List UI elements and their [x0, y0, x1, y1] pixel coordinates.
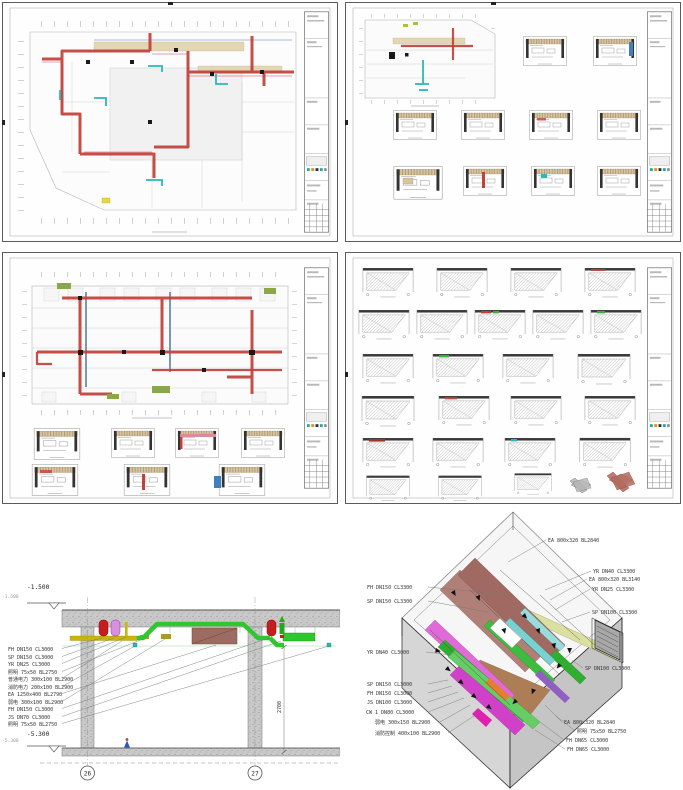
blue-riser — [214, 476, 221, 488]
elev-top-value-small: -1.500 — [2, 594, 19, 600]
section-label-4: 普通电力 300x100 BL2900 — [8, 676, 73, 683]
axon-left-4: FH DN150 CL3000 — [367, 691, 412, 697]
leader-lines — [62, 637, 329, 724]
section-label-9: JS DN70 CL3000 — [8, 715, 50, 721]
grid-bubble-26: 26 — [81, 766, 95, 780]
elevation-marker-bottom: -5.300 -5.300 — [2, 731, 66, 752]
elev-bottom-value: -5.300 — [27, 731, 50, 738]
axon-right-4: SP DN100 CL3300 — [592, 610, 637, 616]
axon-right-5: SP DN100 CL3000 — [585, 666, 630, 672]
axon-left-8: 消防控制 400x100 BL2900 — [375, 730, 440, 737]
section-label-10: 照明 75x50 BL2750 — [8, 722, 57, 728]
yellow-stub — [125, 622, 128, 636]
fire-tank-red-2 — [267, 620, 276, 636]
axon-left-0: FH DN150 CL3300 — [367, 585, 412, 591]
fire-tank-red — [99, 620, 108, 636]
section-label-3: 照明 75x50 BL2750 — [8, 670, 57, 676]
plan-drawing — [22, 272, 297, 418]
grid-bubble-27: 27 — [248, 766, 262, 780]
tank-magenta — [111, 620, 120, 636]
elev-top-value: -1.500 — [27, 584, 50, 591]
title-block — [647, 12, 672, 232]
section-label-5: 消防电力 200x100 BL2900 — [8, 684, 73, 691]
axon-3d-view: FH DN150 CL3300 SP DN150 CL3300 YR DN40 … — [340, 500, 683, 790]
axon-right-9: FH DN65 CL3000 — [567, 747, 609, 753]
title-block — [304, 268, 329, 488]
axon-left-3: SP DN150 CL3000 — [367, 682, 412, 688]
section-label-6: EA 1250x400 BL2790 — [8, 692, 62, 698]
axon-right-3: YR DN25 CL3300 — [592, 587, 634, 593]
sheet-plan-basement — [2, 2, 338, 242]
sheet-details-b — [345, 252, 681, 504]
sheet-plan-floor1 — [2, 252, 338, 504]
axon-right-8: FH DN65 CL3000 — [566, 738, 608, 744]
section-label-2: YR DN25 CL3000 — [8, 662, 50, 668]
grid-bubble-27-text: 27 — [251, 771, 259, 778]
axon-right-2: EA 800x320 BL3140 — [589, 577, 640, 583]
red-riser — [482, 172, 485, 188]
dimension-2700: 2700 — [277, 645, 287, 754]
pipe-green-header — [283, 633, 315, 641]
dim-2700-text: 2700 — [277, 701, 283, 713]
axon-left-2: YR DN40 CL3000 — [367, 650, 409, 656]
axon-right-1: YR DN40 CL3300 — [593, 569, 635, 575]
axon-right-0: EA 800x320 BL2840 — [548, 538, 599, 544]
title-block — [304, 12, 329, 232]
elevation-marker-top: -1.500 -1.500 — [2, 584, 66, 609]
axon-left-6: CW 1 DN80 CL3000 — [366, 710, 414, 716]
title-block — [647, 268, 672, 488]
axon-left-1: SP DN150 CL3300 — [367, 599, 412, 605]
axon-left-5: JS DN100 CL3000 — [367, 700, 412, 706]
cable-tray-yellow — [70, 636, 137, 641]
mini-plan — [359, 14, 495, 106]
sensor-teal-a — [133, 643, 137, 647]
trunking-b — [161, 634, 171, 639]
pink-duct-run — [180, 434, 216, 437]
axon-right-6: EA 800x320 BL2840 — [564, 720, 615, 726]
section-label-8: FH DN150 CL3000 — [8, 707, 53, 713]
section-label-1: SP DN150 CL3000 — [8, 655, 53, 661]
axon-left-7: 弱电 300x150 BL2900 — [375, 719, 430, 726]
sheet-details-a — [345, 2, 681, 242]
grid-bubble-26-text: 26 — [84, 771, 92, 778]
floor-slab — [62, 748, 340, 756]
person-figure — [124, 738, 130, 747]
axon-right-7: 照明 75x50 BL2750 — [577, 729, 626, 735]
section-label-0: FH DN150 CL3000 — [8, 647, 53, 653]
blue-riser — [629, 42, 633, 56]
elev-bottom-value-small: -5.300 — [2, 738, 19, 744]
section-label-7: 弱电 300x100 BL2900 — [8, 699, 63, 706]
duct-brown — [192, 628, 237, 644]
section-detail-drawing: FH DN150 CL3000 SP DN150 CL3000 YR DN25 … — [0, 555, 340, 790]
